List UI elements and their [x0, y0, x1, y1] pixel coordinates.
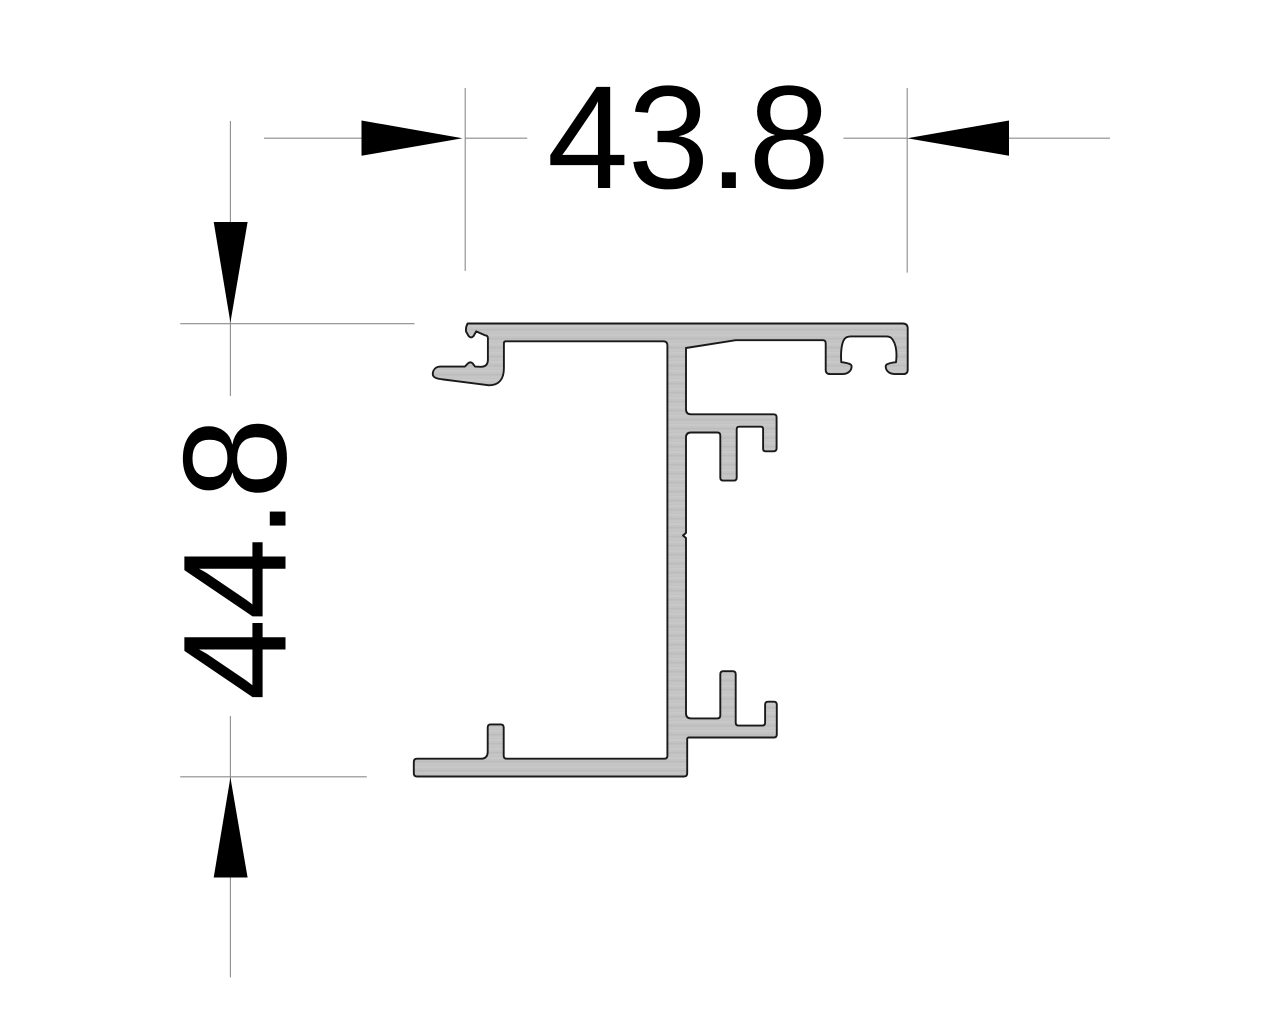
svg-text:44.8: 44.8 [154, 418, 318, 700]
svg-text:43.8: 43.8 [547, 56, 829, 220]
